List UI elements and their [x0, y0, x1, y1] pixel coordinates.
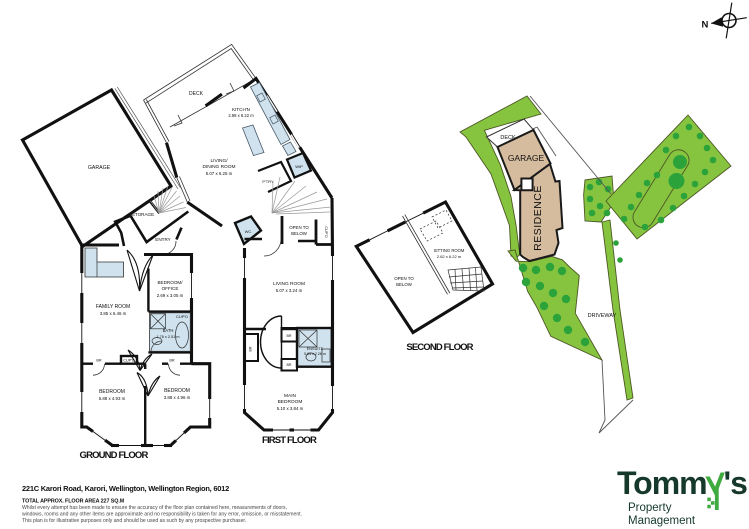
svg-text:3.85 x 6.46 m: 3.85 x 6.46 m: [100, 311, 127, 316]
svg-text:BATH: BATH: [163, 328, 174, 333]
svg-text:DECK: DECK: [189, 91, 204, 97]
svg-text:BR: BR: [249, 346, 253, 351]
svg-text:BEDROOM/: BEDROOM/: [157, 280, 183, 285]
svg-text:BR: BR: [96, 359, 102, 363]
svg-text:LIVING/: LIVING/: [210, 158, 228, 164]
svg-text:SITTING ROOM: SITTING ROOM: [434, 248, 465, 253]
svg-text:OFFICE: OFFICE: [162, 286, 179, 291]
svg-text:BR: BR: [287, 334, 292, 338]
svg-text:CUP'D: CUP'D: [123, 359, 135, 363]
svg-text:STORAGE: STORAGE: [132, 212, 154, 217]
svg-text:2.98 x 6.22 m: 2.98 x 6.22 m: [228, 113, 254, 118]
svg-text:'s: 's: [724, 465, 748, 501]
svg-text:N: N: [702, 20, 709, 31]
svg-text:BR: BR: [169, 359, 175, 363]
svg-text:This plan is for illustrative: This plan is for illustrative purposes o…: [22, 518, 246, 524]
svg-text:P'TRY: P'TRY: [262, 179, 274, 184]
svg-text:RESIDENCE: RESIDENCE: [532, 185, 544, 251]
svg-text:Property: Property: [628, 502, 672, 514]
svg-text:LIVING ROOM: LIVING ROOM: [273, 281, 305, 287]
svg-text:FAMILY ROOM: FAMILY ROOM: [96, 304, 130, 310]
svg-text:DINING ROOM: DINING ROOM: [202, 164, 235, 170]
svg-text:GARAGE: GARAGE: [88, 165, 111, 171]
svg-text:KITCH'N: KITCH'N: [232, 107, 250, 112]
svg-text:3.88 x 4.96 m: 3.88 x 4.96 m: [164, 395, 191, 400]
svg-text:BEDROOM: BEDROOM: [278, 399, 303, 405]
svg-text:5.88 x 4.93 m: 5.88 x 4.93 m: [99, 396, 126, 401]
svg-text:FIRST FLOOR: FIRST FLOOR: [262, 435, 317, 446]
svg-text:DRIVEWAY: DRIVEWAY: [588, 313, 617, 319]
svg-text:WIP: WIP: [295, 164, 303, 169]
svg-text:MAIN: MAIN: [284, 393, 297, 399]
svg-text:SECOND FLOOR: SECOND FLOOR: [406, 342, 473, 353]
svg-text:OPEN TO: OPEN TO: [289, 225, 309, 230]
svg-text:TOTAL APPROX. FLOOR AREA 227 S: TOTAL APPROX. FLOOR AREA 227 SQ.M: [22, 499, 125, 505]
svg-text:1.76 x 2.51 m: 1.76 x 2.51 m: [156, 335, 179, 339]
svg-text:Tomm: Tomm: [617, 465, 707, 501]
svg-text:ENTRY: ENTRY: [155, 237, 171, 242]
svg-text:BELOW: BELOW: [291, 231, 308, 236]
svg-text:OPEN TO: OPEN TO: [394, 276, 414, 281]
svg-text:221C Karori Road, Karori, Well: 221C Karori Road, Karori, Wellington, We…: [22, 484, 229, 493]
svg-text:GARAGE: GARAGE: [508, 153, 545, 163]
svg-text:5.07 x 3.24 m: 5.07 x 3.24 m: [276, 288, 303, 293]
svg-text:windows, rooms and any other i: windows, rooms and any other items are a…: [22, 512, 302, 518]
svg-text:2.69 x 3.05 m: 2.69 x 3.05 m: [157, 293, 184, 298]
svg-text:WC: WC: [245, 229, 252, 234]
svg-text:BELOW: BELOW: [396, 282, 413, 287]
svg-text:CUP'D: CUP'D: [324, 226, 328, 238]
svg-text:Whilst every attempt has been: Whilst every attempt has been made to en…: [22, 505, 287, 511]
svg-text:5.10 x 3.84 m: 5.10 x 3.84 m: [277, 406, 304, 411]
svg-text:5.07 x 6.25 m: 5.07 x 6.25 m: [206, 171, 233, 176]
svg-text:GROUND FLOOR: GROUND FLOOR: [80, 450, 149, 461]
svg-text:5.03 x 2.26 m: 5.03 x 2.26 m: [304, 352, 326, 356]
svg-text:BEDROOM: BEDROOM: [164, 388, 190, 394]
svg-text:ENSUITE: ENSUITE: [307, 347, 324, 351]
svg-text:Management: Management: [628, 515, 696, 527]
svg-text:CUP'D: CUP'D: [176, 314, 188, 319]
svg-text:BEDROOM: BEDROOM: [99, 389, 125, 395]
svg-text:BR: BR: [287, 363, 292, 367]
svg-text:2.62 x 6.22 m: 2.62 x 6.22 m: [437, 254, 462, 259]
